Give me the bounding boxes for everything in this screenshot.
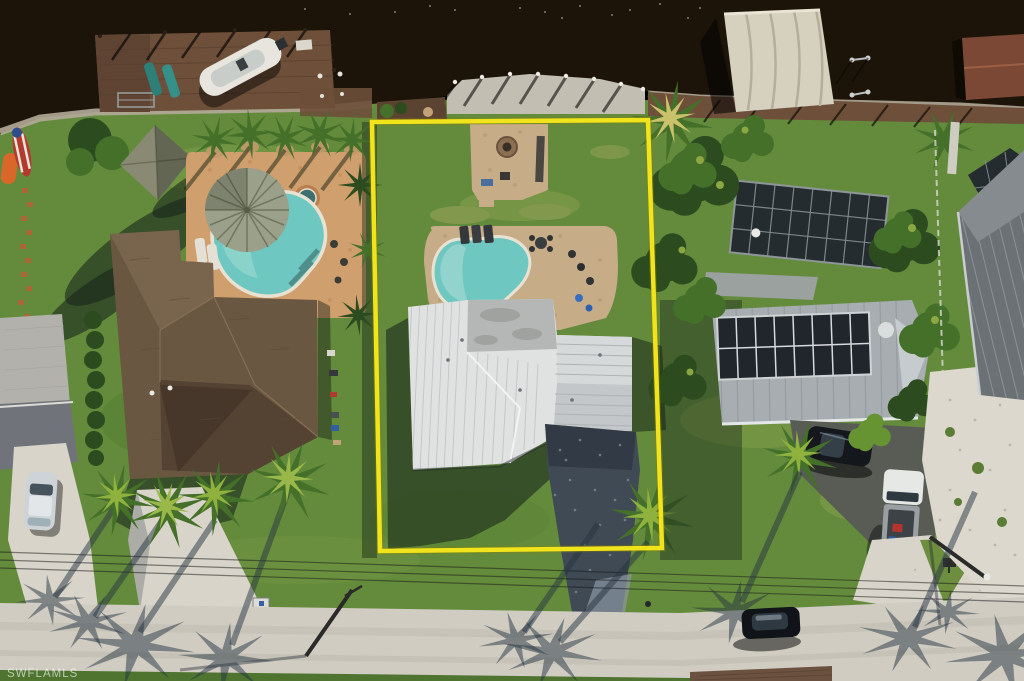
patio-bench	[535, 136, 545, 182]
car-silver	[23, 471, 64, 537]
roof-vent	[150, 391, 155, 396]
neighbor-house-left	[0, 311, 105, 610]
solar-panels	[717, 312, 871, 379]
far-right-dock-roof	[952, 34, 1024, 100]
aerial-photo: SWFLAMLS	[0, 0, 1024, 681]
aerial-photo-canvas: SWFLAMLS	[0, 0, 1024, 681]
red-cargo	[892, 524, 903, 533]
roof-vent	[168, 386, 173, 391]
small-dark-object	[645, 601, 651, 607]
screen-enclosure	[730, 181, 889, 268]
watermark: SWFLAMLS	[7, 668, 78, 680]
pool-toy-blue	[575, 294, 583, 302]
blue-mat	[481, 179, 493, 186]
pool-toy-blue	[586, 305, 593, 312]
tiki-umbrella	[205, 168, 289, 252]
grill	[500, 172, 510, 180]
dock-box	[296, 39, 313, 50]
dock-left	[95, 28, 372, 118]
